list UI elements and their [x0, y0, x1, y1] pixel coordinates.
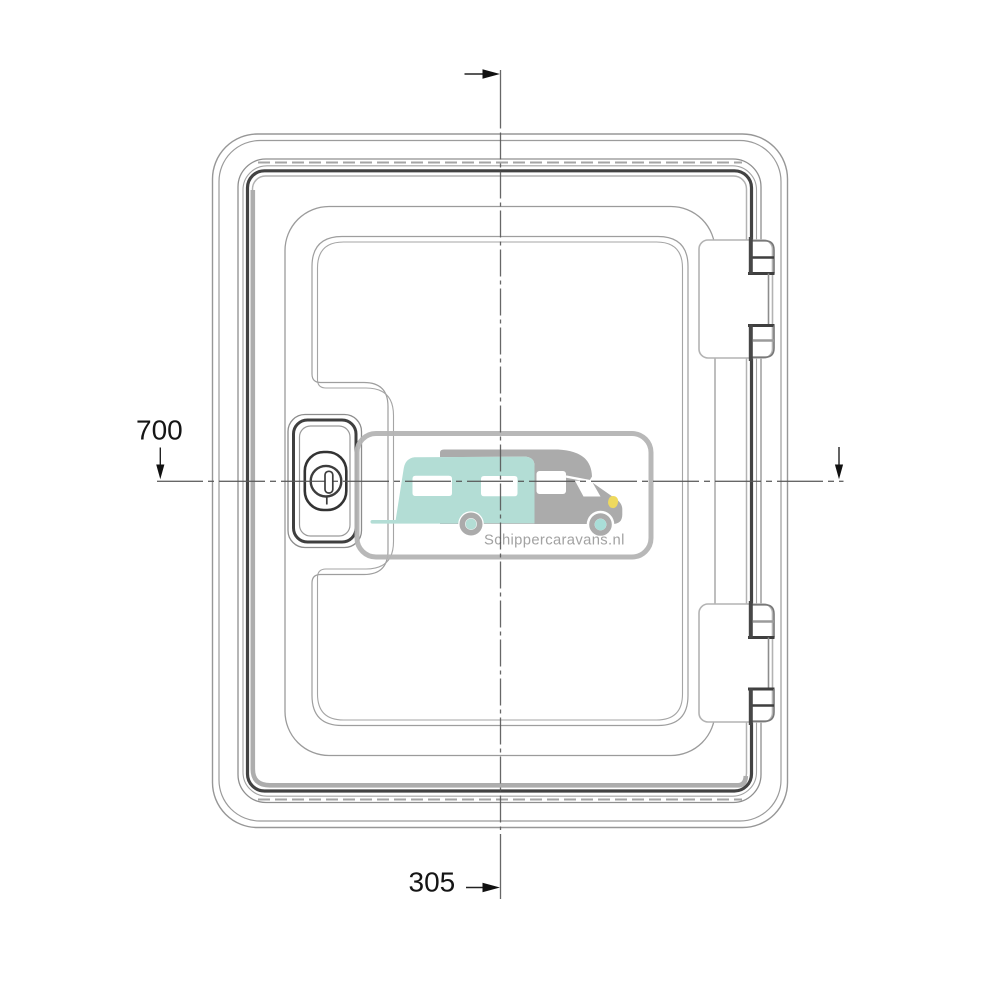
svg-text:Schippercaravans.nl: Schippercaravans.nl	[484, 533, 625, 549]
svg-text:305: 305	[409, 867, 456, 898]
svg-text:700: 700	[136, 415, 183, 446]
